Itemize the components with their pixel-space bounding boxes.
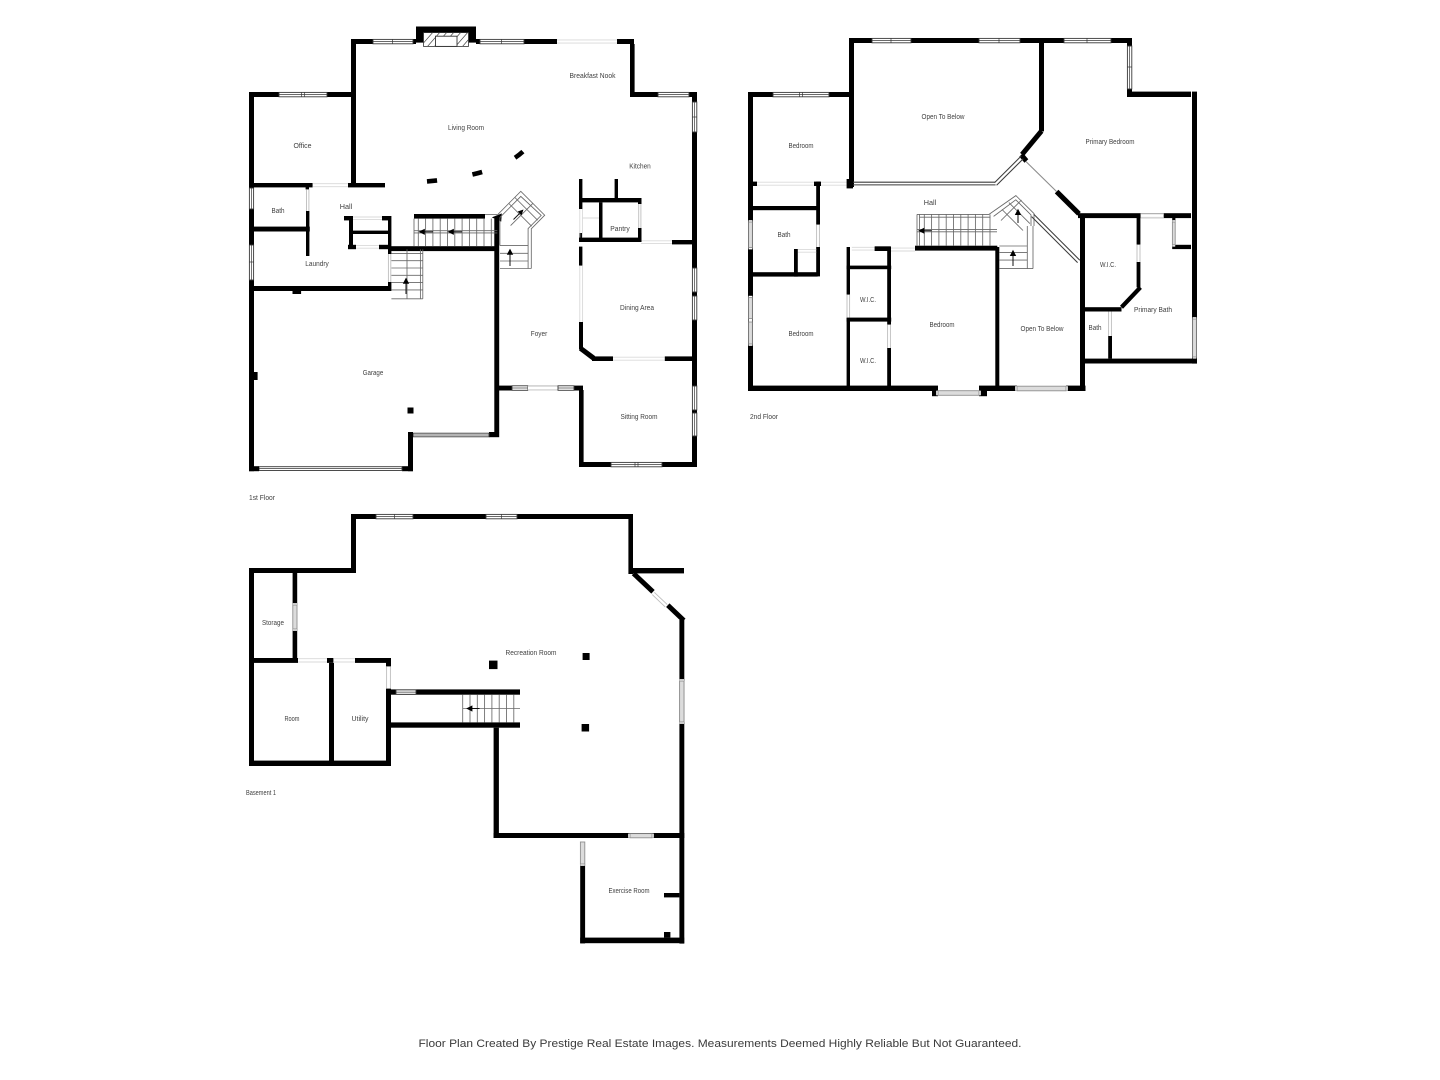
svg-text:Open To Below: Open To Below: [1021, 326, 1065, 333]
svg-text:Sitting Room: Sitting Room: [621, 414, 658, 421]
svg-text:Laundry: Laundry: [305, 261, 329, 268]
svg-text:Dining Area: Dining Area: [620, 305, 654, 312]
svg-text:Open To Below: Open To Below: [922, 114, 966, 121]
svg-text:Bath: Bath: [1089, 325, 1102, 332]
svg-text:Bedroom: Bedroom: [930, 322, 955, 329]
svg-text:Storage: Storage: [262, 620, 284, 627]
svg-text:Bedroom: Bedroom: [789, 331, 814, 338]
svg-text:2nd Floor: 2nd Floor: [750, 414, 779, 421]
svg-text:Garage: Garage: [363, 370, 384, 377]
svg-text:Bath: Bath: [272, 208, 285, 215]
svg-text:Breakfast Nook: Breakfast Nook: [570, 73, 616, 80]
svg-text:Recreation Room: Recreation Room: [506, 650, 557, 657]
svg-text:Bath: Bath: [778, 232, 791, 239]
svg-text:W.I.C.: W.I.C.: [860, 358, 876, 365]
svg-text:Hall: Hall: [340, 204, 353, 211]
svg-text:Office: Office: [294, 143, 312, 150]
svg-text:W.I.C.: W.I.C.: [1100, 262, 1116, 269]
svg-text:Pantry: Pantry: [610, 226, 630, 233]
svg-text:Kitchen: Kitchen: [629, 164, 651, 171]
svg-text:Room: Room: [285, 716, 300, 723]
svg-text:Bedroom: Bedroom: [789, 143, 814, 150]
svg-text:Living Room: Living Room: [448, 125, 484, 132]
svg-text:1st Floor: 1st Floor: [249, 495, 276, 502]
svg-text:Hall: Hall: [924, 200, 937, 207]
svg-text:Primary Bedroom: Primary Bedroom: [1086, 139, 1135, 146]
svg-text:Exercise Room: Exercise Room: [609, 888, 650, 895]
svg-text:Floor Plan Created By Prestige: Floor Plan Created By Prestige Real Esta…: [419, 1038, 1022, 1050]
svg-text:Utility: Utility: [352, 716, 369, 723]
svg-text:Primary Bath: Primary Bath: [1134, 307, 1172, 314]
svg-text:Foyer: Foyer: [531, 331, 548, 338]
svg-text:W.I.C.: W.I.C.: [860, 297, 876, 304]
svg-text:Basement 1: Basement 1: [246, 790, 276, 797]
